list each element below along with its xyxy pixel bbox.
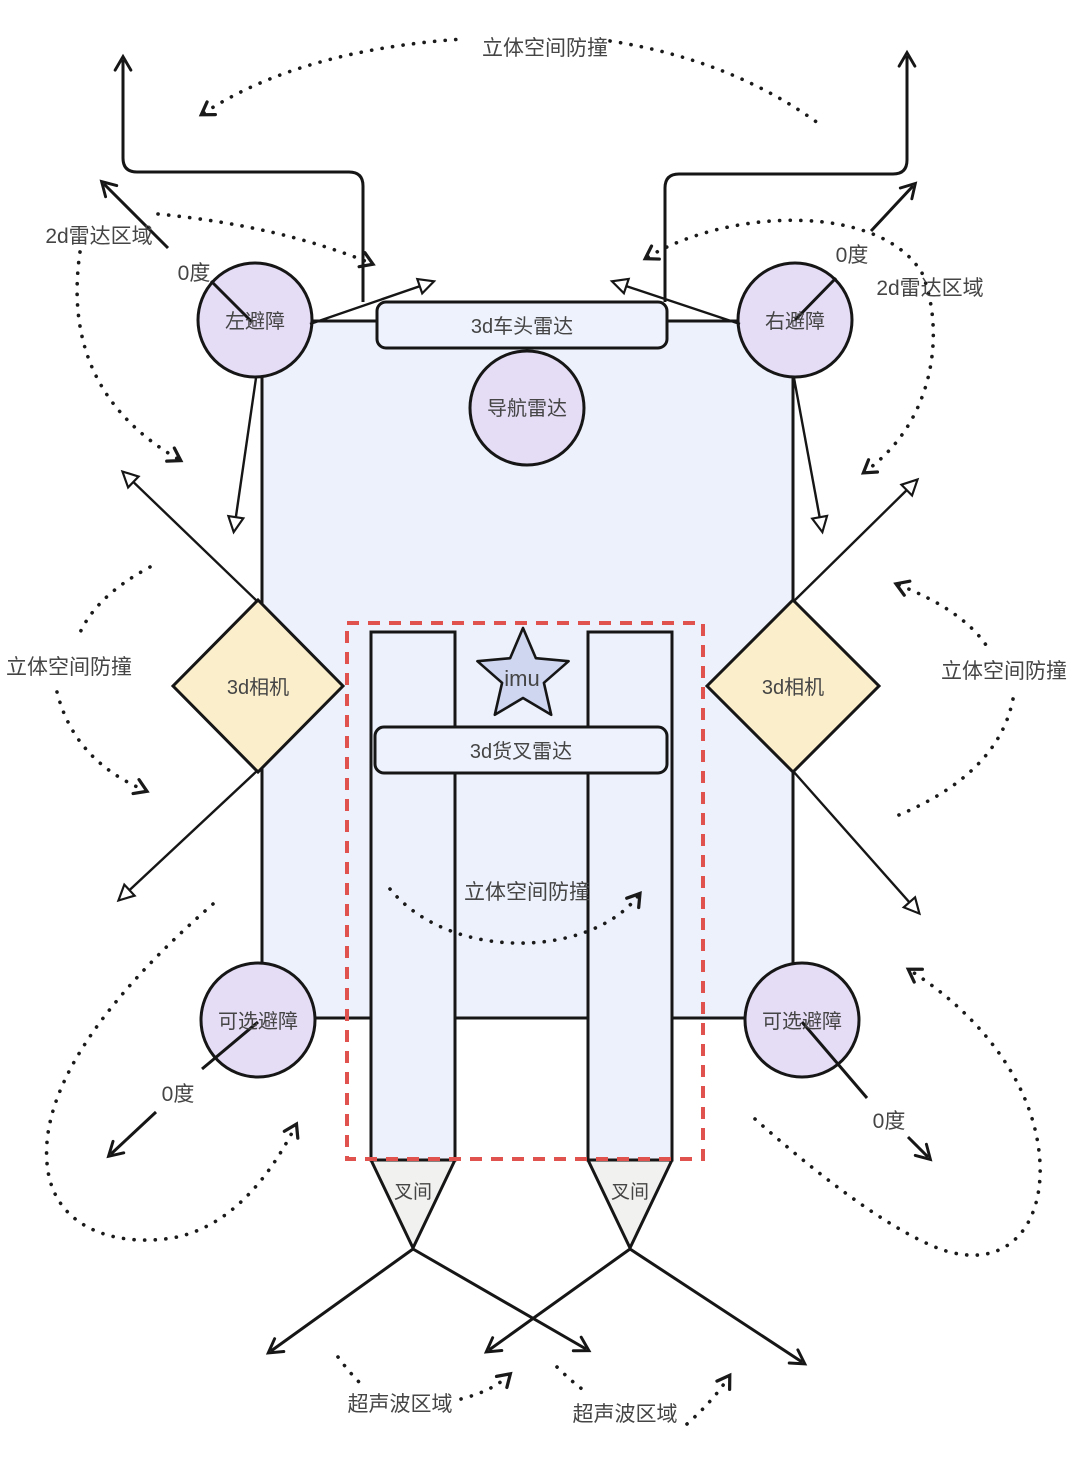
right-fork-gap-label: 叉间 — [611, 1181, 649, 1203]
right-camera-label: 3d相机 — [762, 676, 824, 699]
left-lidar-down-arrow — [234, 378, 256, 530]
right-space-arc-lower — [894, 699, 1013, 817]
bottom-left-zero-arrow — [111, 1112, 156, 1154]
right-camera-up-arrow — [793, 481, 916, 602]
imu-label: imu — [504, 666, 539, 691]
left-2d-radar-arc-outer — [77, 252, 178, 459]
diagram-canvas: 立体空间防撞 2d雷达区域 2d雷达区域 0度 0度 左避障 右避障 3d车头雷… — [0, 0, 1080, 1458]
right-camera-down-arrow — [793, 771, 918, 912]
bottom-right-zero-label: 0度 — [873, 1110, 906, 1133]
left-camera-up-arrow — [124, 473, 258, 602]
top-space-arc-right — [610, 41, 822, 126]
left-space-arc-upper — [77, 567, 150, 640]
right-fork-tip-triangle — [588, 1160, 672, 1248]
right-2d-radar-area-label: 2d雷达区域 — [876, 277, 983, 300]
bottom-left-zero-label: 0度 — [162, 1083, 195, 1106]
left-fork-tine — [371, 632, 455, 1160]
left-ultrasonic-area-label: 超声波区域 — [348, 1393, 453, 1416]
left-optional-label: 可选避障 — [218, 1010, 298, 1033]
ultrasonic-right-arc-a — [557, 1367, 582, 1389]
left-2d-radar-arc-inner — [158, 214, 370, 263]
left-fork-ultrasonic-left-arrow — [271, 1249, 413, 1351]
top-space-collision-label: 立体空间防撞 — [482, 37, 608, 60]
ultrasonic-right-arc-b — [687, 1378, 728, 1424]
fork-radar-label: 3d货叉雷达 — [470, 740, 572, 763]
ultrasonic-left-arc-a — [338, 1357, 359, 1382]
right-lidar-zero-arrow — [871, 186, 913, 231]
left-avoid-label: 左避障 — [225, 310, 285, 333]
top-right-zero-label: 0度 — [836, 244, 869, 267]
left-2d-radar-area-label: 2d雷达区域 — [45, 225, 152, 248]
left-camera-label: 3d相机 — [227, 676, 289, 699]
right-lidar-down-arrow — [794, 378, 822, 530]
right-space-arc-upper — [899, 585, 986, 645]
right-avoid-label: 右避障 — [765, 310, 825, 333]
left-fork-gap-label: 叉间 — [394, 1181, 432, 1203]
left-fork-tip-triangle — [371, 1160, 455, 1248]
left-camera-down-arrow — [120, 770, 258, 899]
right-space-collision-label: 立体空间防撞 — [941, 660, 1067, 683]
right-ultrasonic-area-label: 超声波区域 — [573, 1403, 678, 1426]
head-radar-label: 3d车头雷达 — [471, 315, 573, 338]
bottom-right-zero-arrow — [908, 1137, 928, 1157]
nav-radar-label: 导航雷达 — [487, 397, 567, 420]
left-space-collision-label: 立体空间防撞 — [6, 656, 132, 679]
top-space-arc-left — [204, 39, 463, 113]
right-optional-label: 可选避障 — [762, 1010, 842, 1033]
ultrasonic-left-arc-b — [461, 1376, 508, 1399]
top-left-zero-label: 0度 — [178, 262, 211, 285]
sensor-layout-diagram: 立体空间防撞 2d雷达区域 2d雷达区域 0度 0度 左避障 右避障 3d车头雷… — [0, 0, 1080, 1458]
fork-space-collision-label: 立体空间防撞 — [464, 881, 590, 904]
right-fork-ultrasonic-right-arrow — [630, 1249, 802, 1362]
left-space-arc-lower — [57, 692, 144, 790]
right-fork-tine — [588, 632, 672, 1160]
